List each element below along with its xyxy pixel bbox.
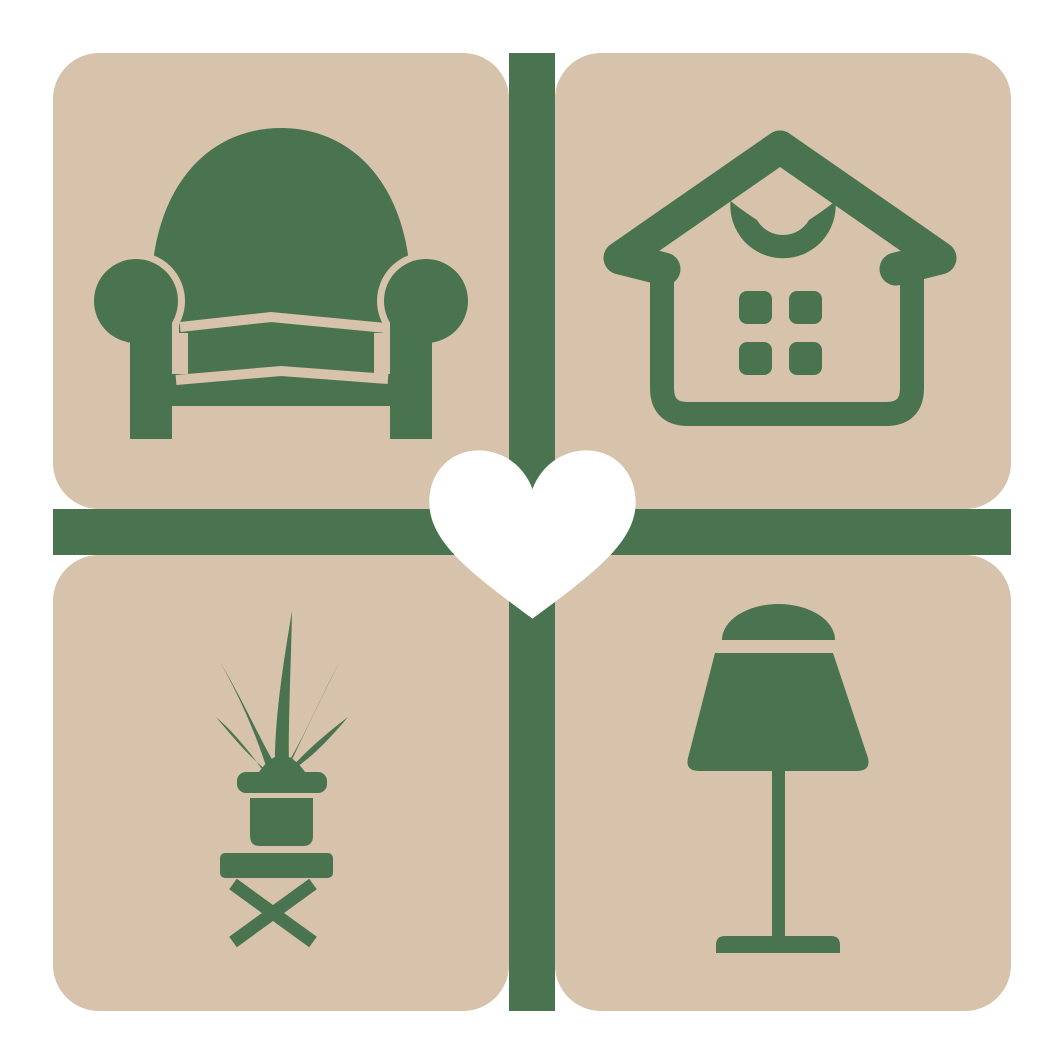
tile-lamp [555,555,1011,1011]
armchair-icon [86,111,476,451]
tile-house [555,53,1011,509]
potted-plant-stool-icon [161,608,401,958]
heart-icon [425,446,640,623]
tile-plant [53,555,509,1011]
house-icon [598,111,968,451]
logo-canvas [0,0,1063,1063]
tile-armchair [53,53,509,509]
table-lamp-icon [683,598,883,968]
